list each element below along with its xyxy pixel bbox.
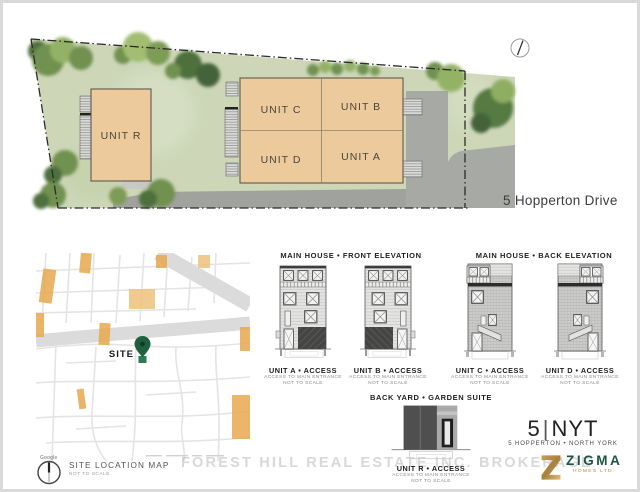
unit-r-access-caption: UNIT R • ACCESS ACCESS TO MAIN ENTRANCE …: [373, 464, 489, 485]
garden-suite-title: BACK YARD • GARDEN SUITE: [341, 393, 521, 402]
unit-b-elevation-drawing: [360, 261, 416, 365]
flyer-page: UNIT R UNIT C UNIT B UNIT D UNIT A 5 Hop…: [0, 0, 640, 492]
unit-r-elevation-drawing: [389, 402, 473, 464]
zigma-z-icon: [539, 454, 563, 481]
site-location-map: SITE Google: [36, 253, 250, 461]
zigma-logo: ZIGMA HOMES LTD.: [539, 454, 623, 481]
unit-a-elevation-drawing: [275, 261, 331, 365]
map-caption-title: SITE LOCATION MAP: [69, 461, 169, 470]
unit-d-access-title: UNIT D • ACCESS: [522, 366, 638, 375]
project-location: 5 HOPPERTON • NORTH YORK: [503, 441, 623, 447]
unit-b-label: UNIT B: [341, 101, 381, 113]
building-unit-r: UNIT R: [80, 89, 151, 181]
north-arrow-icon: [511, 39, 529, 57]
unit-d-elevation-drawing: [554, 261, 606, 365]
logo-name: ZIGMA: [566, 454, 623, 467]
unit-d-access-caption: UNIT D • ACCESS ACCESS TO MAIN ENTRANCE …: [522, 366, 638, 387]
unit-d-label: UNIT D: [261, 154, 302, 166]
project-code: 5|NYT: [508, 416, 618, 442]
compass-icon: [36, 459, 64, 487]
logo-subtitle: HOMES LTD.: [566, 469, 623, 474]
site-pin-label: SITE: [109, 349, 134, 360]
unit-b-access-title: UNIT B • ACCESS: [330, 366, 446, 375]
unit-c-label: UNIT C: [261, 104, 302, 116]
back-elevation-title: MAIN HOUSE • BACK ELEVATION: [454, 251, 634, 260]
map-caption-subtitle: NOT TO SCALE: [69, 472, 110, 477]
unit-r-access-title: UNIT R • ACCESS: [373, 464, 489, 473]
building-main-house: UNIT C UNIT B UNIT D UNIT A: [225, 78, 422, 183]
unit-a-label: UNIT A: [341, 151, 381, 163]
unit-c-elevation-drawing: [464, 261, 516, 365]
project-code-divider: |: [541, 416, 552, 441]
unit-b-access-caption: UNIT B • ACCESS ACCESS TO MAIN ENTRANCE …: [330, 366, 446, 387]
street-label: 5 Hopperton Drive: [503, 193, 639, 208]
unit-r-label: UNIT R: [101, 130, 142, 142]
front-elevation-title: MAIN HOUSE • FRONT ELEVATION: [261, 251, 441, 260]
